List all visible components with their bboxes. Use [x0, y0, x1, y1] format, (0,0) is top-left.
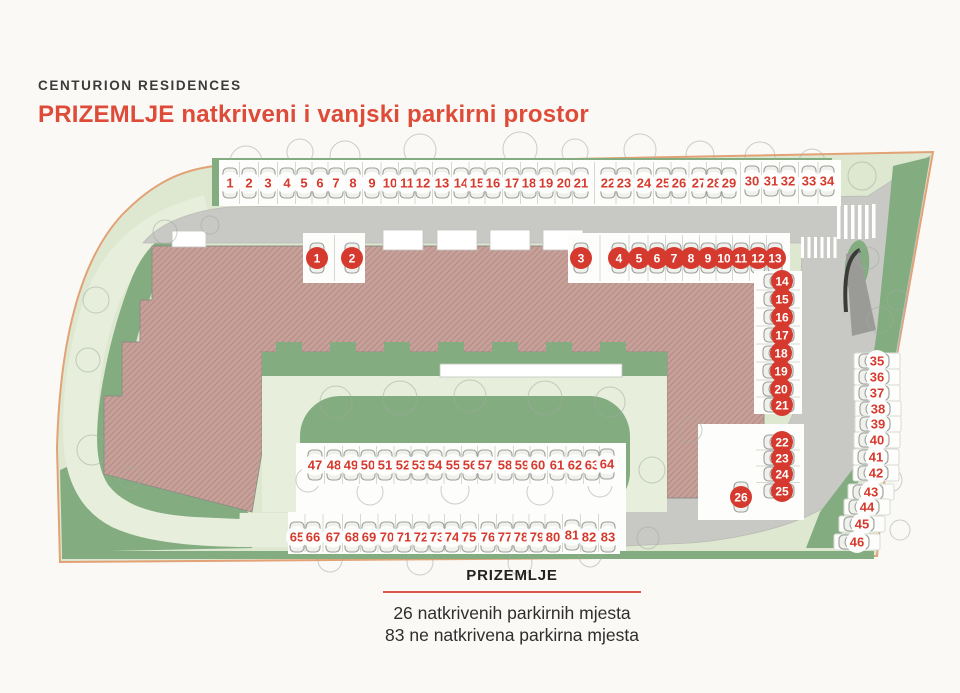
spot-number: 11	[400, 176, 414, 191]
spot-number: 67	[326, 530, 340, 545]
parking-group-outdoor-mid-row: 474849505152535455565758596061626364	[302, 444, 620, 486]
spot-number: 83	[601, 530, 615, 545]
spot-number: 19	[539, 176, 553, 191]
spot-number: 58	[498, 458, 512, 473]
spot-number: 51	[378, 458, 392, 473]
parking-group-outdoor-bottom-row: 65666768697071727374757677787980818283	[286, 512, 620, 554]
spot-number: 25	[775, 485, 789, 499]
spot-number: 17	[505, 176, 519, 191]
spot-number: 31	[764, 174, 778, 189]
spot-number: 17	[775, 329, 789, 343]
spot-number: 18	[774, 347, 788, 361]
spot-number: 60	[531, 458, 545, 473]
spot-number: 61	[550, 458, 564, 473]
spot-number: 24	[775, 468, 789, 482]
spot-number: 81	[565, 528, 579, 543]
spot-number: 40	[870, 433, 884, 448]
spot-number: 9	[368, 176, 375, 191]
tree-icon	[890, 520, 910, 540]
courtyard-canopy-bar	[440, 364, 622, 377]
spot-number: 1	[226, 176, 233, 191]
spot-number: 50	[361, 458, 375, 473]
spot-number: 21	[775, 399, 789, 413]
spot-number: 76	[481, 530, 495, 545]
spot-number: 3	[578, 252, 585, 266]
spot-number: 21	[574, 176, 588, 191]
spot-number: 26	[734, 491, 748, 505]
spot-number: 66	[306, 530, 320, 545]
spot-number: 55	[446, 458, 460, 473]
parking-group-covered-left: 12	[303, 233, 365, 283]
spot-number: 8	[688, 252, 695, 266]
spot-number: 12	[751, 252, 765, 266]
spot-number: 13	[435, 176, 449, 191]
spot-number: 30	[745, 174, 759, 189]
spot-number: 54	[428, 458, 443, 473]
spot-number: 3	[264, 176, 271, 191]
legend: PRIZEMLJE 26 natkrivenih parkirnih mjest…	[252, 567, 772, 646]
spot-number: 42	[869, 466, 883, 481]
spot-number: 16	[486, 176, 500, 191]
spot-number: 47	[308, 458, 322, 473]
spot-number: 19	[774, 365, 788, 379]
spot-number: 1	[314, 252, 321, 266]
legend-title: PRIZEMLJE	[252, 567, 772, 584]
spot-number: 6	[654, 252, 661, 266]
parking-group-outdoor-top-row: 1234567891011121314151617181920212223242…	[219, 160, 841, 206]
page: CENTURION RESIDENCES PRIZEMLJE natkriven…	[0, 0, 960, 693]
parking-group-covered-col-lower: 22232425	[754, 431, 802, 502]
legend-rule	[383, 591, 641, 593]
spot-number: 71	[397, 530, 411, 545]
spot-number: 13	[768, 252, 782, 266]
spot-number: 6	[316, 176, 323, 191]
spot-number: 12	[416, 176, 430, 191]
spot-number: 10	[717, 252, 731, 266]
spot-number: 11	[735, 252, 748, 266]
spot-number: 4	[283, 176, 291, 191]
spot-number: 16	[775, 311, 789, 325]
spot-number: 82	[582, 530, 596, 545]
spot-number: 45	[855, 517, 869, 532]
spot-number: 2	[245, 176, 252, 191]
spot-number: 5	[636, 252, 643, 266]
spot-number: 7	[671, 252, 678, 266]
spot-number: 18	[522, 176, 536, 191]
parking-group-covered-col-upper: 1415161718192021	[754, 270, 802, 416]
spot-number: 75	[462, 530, 476, 545]
spot-number: 20	[557, 176, 571, 191]
spot-number: 7	[332, 176, 339, 191]
spot-number: 23	[617, 176, 631, 191]
spot-number: 80	[546, 530, 560, 545]
spot-number: 64	[600, 457, 615, 472]
spot-number: 26	[672, 176, 686, 191]
spot-number: 15	[775, 293, 789, 307]
spot-number: 4	[616, 252, 623, 266]
spot-number: 9	[705, 252, 712, 266]
spot-number: 32	[781, 174, 795, 189]
spot-number: 70	[380, 530, 394, 545]
spot-number: 5	[300, 176, 307, 191]
spot-number: 29	[722, 176, 736, 191]
spot-number: 2	[349, 252, 356, 266]
spot-number: 24	[637, 176, 652, 191]
spot-number: 62	[568, 458, 582, 473]
spot-number: 57	[478, 458, 492, 473]
spot-number: 46	[850, 535, 864, 550]
legend-outdoor-count: 83 ne natkrivena parkirna mjesta	[252, 624, 772, 646]
spot-number: 68	[345, 530, 359, 545]
spot-number: 48	[327, 458, 341, 473]
spot-number: 44	[860, 500, 875, 515]
spot-number: 49	[344, 458, 358, 473]
legend-covered-count: 26 natkrivenih parkirnih mjesta	[252, 602, 772, 624]
spot-number: 69	[362, 530, 376, 545]
parking-group-covered-single: 26	[727, 474, 755, 520]
spot-number: 74	[445, 530, 460, 545]
spot-number: 33	[802, 174, 816, 189]
spot-number: 10	[383, 176, 397, 191]
spot-number: 8	[349, 176, 356, 191]
spot-number: 34	[820, 174, 835, 189]
spot-number: 14	[775, 275, 789, 289]
